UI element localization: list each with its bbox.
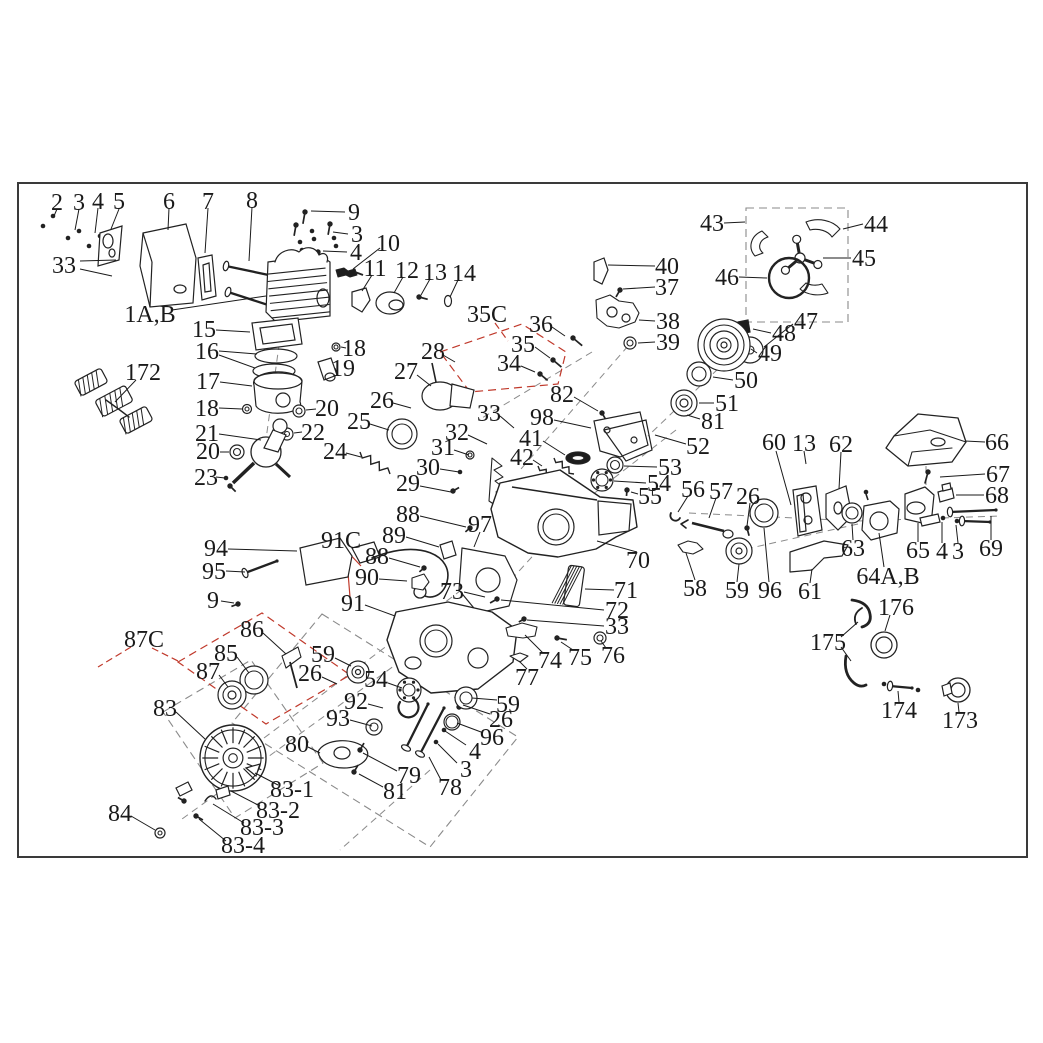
- part-label-4: 4: [936, 539, 948, 565]
- part-shape: [140, 224, 196, 307]
- part-label-91: 91: [341, 591, 365, 617]
- part-shape-screw: [227, 483, 232, 488]
- part-label-17: 17: [196, 369, 220, 395]
- part-shape-bolt: [426, 702, 429, 705]
- part-label-55: 55: [638, 484, 662, 510]
- part-label-7: 7: [202, 189, 214, 215]
- part-label-28: 28: [421, 339, 445, 365]
- part-shape-screw: [421, 565, 426, 570]
- part-shape-ring: [155, 828, 165, 838]
- part-shape-bearing-ball: [398, 688, 401, 691]
- part-shape-screw: [293, 222, 298, 227]
- part-label-68: 68: [985, 483, 1009, 509]
- part-label-70: 70: [626, 548, 650, 574]
- part-label-87: 87: [196, 659, 220, 685]
- part-label-8: 8: [246, 188, 258, 214]
- part-label-29: 29: [396, 471, 420, 497]
- part-label-45: 45: [852, 246, 876, 272]
- part-shape-screw: [550, 357, 555, 362]
- part-shape-bolt: [275, 559, 278, 562]
- part-shape-ring: [366, 719, 382, 735]
- part-label-25: 25: [347, 409, 371, 435]
- part-shape-ring: [466, 451, 474, 459]
- part-shape-bearing-ball: [596, 471, 599, 474]
- part-shape-bearing-ball: [596, 486, 599, 489]
- part-shape-screw: [327, 221, 332, 226]
- part-label-59: 59: [311, 642, 335, 668]
- part-shape: [572, 456, 584, 461]
- part-shape: [252, 318, 302, 350]
- part-label-18: 18: [195, 396, 219, 422]
- part-shape-screw: [357, 747, 362, 752]
- part-shape-dot: [77, 229, 82, 234]
- part-shape-dot: [298, 240, 303, 245]
- part-shape-bearing-ball: [416, 688, 419, 691]
- part-label-97: 97: [468, 512, 492, 538]
- part-shape-screw: [351, 769, 356, 774]
- part-label-73: 73: [440, 579, 464, 605]
- part-shape-ring: [230, 445, 244, 459]
- part-label-74: 74: [538, 648, 562, 674]
- part-shape-bolt: [442, 706, 445, 709]
- part-shape-dot: [310, 229, 315, 234]
- part-shape-screw: [450, 488, 455, 493]
- part-label-47: 47: [794, 309, 818, 335]
- part-shape-dot: [312, 237, 317, 242]
- chainsaw-parts-diagram: 2345678934331A,B101112131415161717218191…: [0, 0, 1043, 1043]
- part-label-96: 96: [758, 578, 782, 604]
- part-label-84: 84: [108, 801, 132, 827]
- part-shape-screw: [599, 410, 604, 415]
- part-shape: [942, 683, 952, 696]
- part-shape-ring: [293, 405, 305, 417]
- part-label-62: 62: [829, 432, 853, 458]
- part-label-19: 19: [331, 356, 355, 382]
- part-label-26: 26: [736, 484, 760, 510]
- part-label-12: 12: [395, 258, 419, 284]
- part-shape: [336, 268, 357, 277]
- part-label-75: 75: [568, 645, 592, 671]
- part-label-80: 80: [285, 732, 309, 758]
- part-label-11: 11: [363, 256, 386, 282]
- part-shape-screw: [181, 798, 186, 803]
- part-shape-ring: [726, 538, 752, 564]
- part-label-56: 56: [681, 477, 705, 503]
- part-label-16: 16: [195, 339, 219, 365]
- part-shape-bolt: [947, 507, 953, 517]
- part-label-46: 46: [715, 265, 739, 291]
- part-label-77: 77: [515, 665, 539, 691]
- part-label-34: 34: [497, 351, 521, 377]
- part-label-66: 66: [985, 430, 1009, 456]
- part-shape-ring: [607, 457, 623, 473]
- part-shape-spider: [793, 235, 801, 243]
- part-label-44: 44: [864, 212, 888, 238]
- part-shape-dot: [882, 682, 887, 687]
- part-label-27: 27: [394, 359, 418, 385]
- part-shape-ring: [671, 390, 697, 416]
- part-label-13: 13: [423, 260, 447, 286]
- part-label-52: 52: [686, 434, 710, 460]
- part-label-176: 176: [878, 595, 914, 621]
- part-label-78: 78: [438, 775, 462, 801]
- part-label-36: 36: [529, 312, 553, 338]
- part-shape-bearing-ball: [403, 681, 406, 684]
- part-label-59: 59: [496, 692, 520, 718]
- part-label-37: 37: [655, 275, 679, 301]
- part-shape-screw: [521, 616, 526, 621]
- part-label-172: 172: [125, 360, 161, 386]
- part-label-23: 23: [194, 465, 218, 491]
- part-label-26: 26: [370, 388, 394, 414]
- part-label-20: 20: [315, 396, 339, 422]
- part-shape-flywheel: [223, 748, 243, 768]
- part-label-175: 175: [810, 630, 846, 656]
- part-shape-bearing-ball: [412, 681, 415, 684]
- part-shape-ring: [243, 405, 252, 414]
- part-shape-screw: [554, 635, 559, 640]
- part-shape-screw: [302, 209, 307, 214]
- part-label-83-4: 83-4: [221, 833, 265, 859]
- part-label-13: 13: [792, 431, 816, 457]
- part-label-58: 58: [683, 576, 707, 602]
- part-label-33: 33: [52, 253, 76, 279]
- part-label-64A,B: 64A,B: [856, 564, 919, 590]
- part-label-20: 20: [196, 439, 220, 465]
- part-label-3: 3: [952, 539, 964, 565]
- part-shape-bearing-ball: [605, 486, 608, 489]
- part-shape-ring: [624, 337, 636, 349]
- part-shape-screw: [570, 335, 575, 340]
- part-shape-screw: [494, 596, 499, 601]
- part-shape-dot: [334, 244, 339, 249]
- part-label-91C: 91C: [321, 528, 361, 554]
- part-shape-bearing-ball: [403, 696, 406, 699]
- part-label-4: 4: [350, 240, 362, 266]
- part-shape-bolt: [962, 521, 990, 522]
- part-shape-screw: [744, 525, 749, 530]
- part-label-35C: 35C: [467, 302, 507, 328]
- part-label-60: 60: [762, 430, 786, 456]
- part-shape-ring: [687, 362, 711, 386]
- part-shape: [862, 501, 899, 540]
- part-shape-screw: [624, 487, 629, 492]
- part-label-10: 10: [376, 231, 400, 257]
- part-shape-ring: [710, 331, 738, 359]
- part-shape-screw: [235, 601, 240, 606]
- part-label-24: 24: [323, 439, 347, 465]
- part-shape-screw: [617, 287, 622, 292]
- part-label-5: 5: [113, 189, 125, 215]
- part-label-14: 14: [452, 261, 476, 287]
- part-shape-dot: [864, 490, 869, 495]
- part-label-69: 69: [979, 536, 1003, 562]
- part-label-93: 93: [326, 706, 350, 732]
- part-label-63: 63: [841, 536, 865, 562]
- part-shape-screw: [537, 371, 542, 376]
- part-label-6: 6: [163, 189, 175, 215]
- part-label-9: 9: [207, 588, 219, 614]
- part-label-43: 43: [700, 211, 724, 237]
- part-shape-screw: [193, 813, 198, 818]
- part-shape: [942, 483, 951, 491]
- part-label-42: 42: [510, 445, 534, 471]
- part-shape-ring: [218, 681, 246, 709]
- part-label-81: 81: [383, 779, 407, 805]
- part-shape-dot: [87, 244, 92, 249]
- part-shape-dot: [916, 688, 921, 693]
- part-shape-dot: [434, 740, 439, 745]
- part-shape-ring: [842, 503, 862, 523]
- part-shape-bearing-ball: [592, 478, 595, 481]
- part-shape-dot: [66, 236, 71, 241]
- part-label-22: 22: [301, 420, 325, 446]
- part-label-61: 61: [798, 579, 822, 605]
- screenshot-root: 2345678934331A,B101112131415161717218191…: [0, 0, 1043, 1043]
- part-shape-ring: [332, 343, 340, 351]
- part-shape-dot: [332, 236, 337, 241]
- part-label-87C: 87C: [124, 627, 164, 653]
- part-shape-spider: [814, 260, 822, 268]
- part-label-4: 4: [92, 189, 104, 215]
- part-label-173: 173: [942, 708, 978, 734]
- part-label-54: 54: [364, 667, 388, 693]
- part-label-95: 95: [202, 559, 226, 585]
- part-label-3: 3: [73, 190, 85, 216]
- part-shape-dot: [941, 516, 946, 521]
- part-label-90: 90: [355, 565, 379, 591]
- part-label-59: 59: [725, 578, 749, 604]
- part-label-76: 76: [601, 643, 625, 669]
- part-label-2: 2: [51, 190, 63, 216]
- part-label-81: 81: [701, 409, 725, 435]
- part-label-39: 39: [656, 330, 680, 356]
- part-shape-screw: [925, 469, 930, 474]
- part-shape-bolt: [910, 686, 913, 689]
- part-label-65: 65: [906, 538, 930, 564]
- part-label-174: 174: [881, 698, 917, 724]
- part-label-33: 33: [477, 401, 501, 427]
- part-label-1A,B: 1A,B: [124, 302, 175, 328]
- part-shape-dot: [955, 519, 960, 524]
- part-label-57: 57: [709, 479, 733, 505]
- part-label-33: 33: [605, 614, 629, 640]
- part-shape-bearing-ball: [605, 471, 608, 474]
- part-shape: [871, 632, 897, 658]
- part-label-83: 83: [153, 696, 177, 722]
- part-shape-bearing-ball: [609, 478, 612, 481]
- part-label-49: 49: [758, 341, 782, 367]
- part-label-86: 86: [240, 617, 264, 643]
- part-shape-bolt: [887, 681, 893, 691]
- part-shape-dot: [41, 224, 46, 229]
- part-shape-bolt: [959, 516, 965, 526]
- part-shape-spider: [781, 266, 789, 274]
- part-shape-screw: [416, 294, 421, 299]
